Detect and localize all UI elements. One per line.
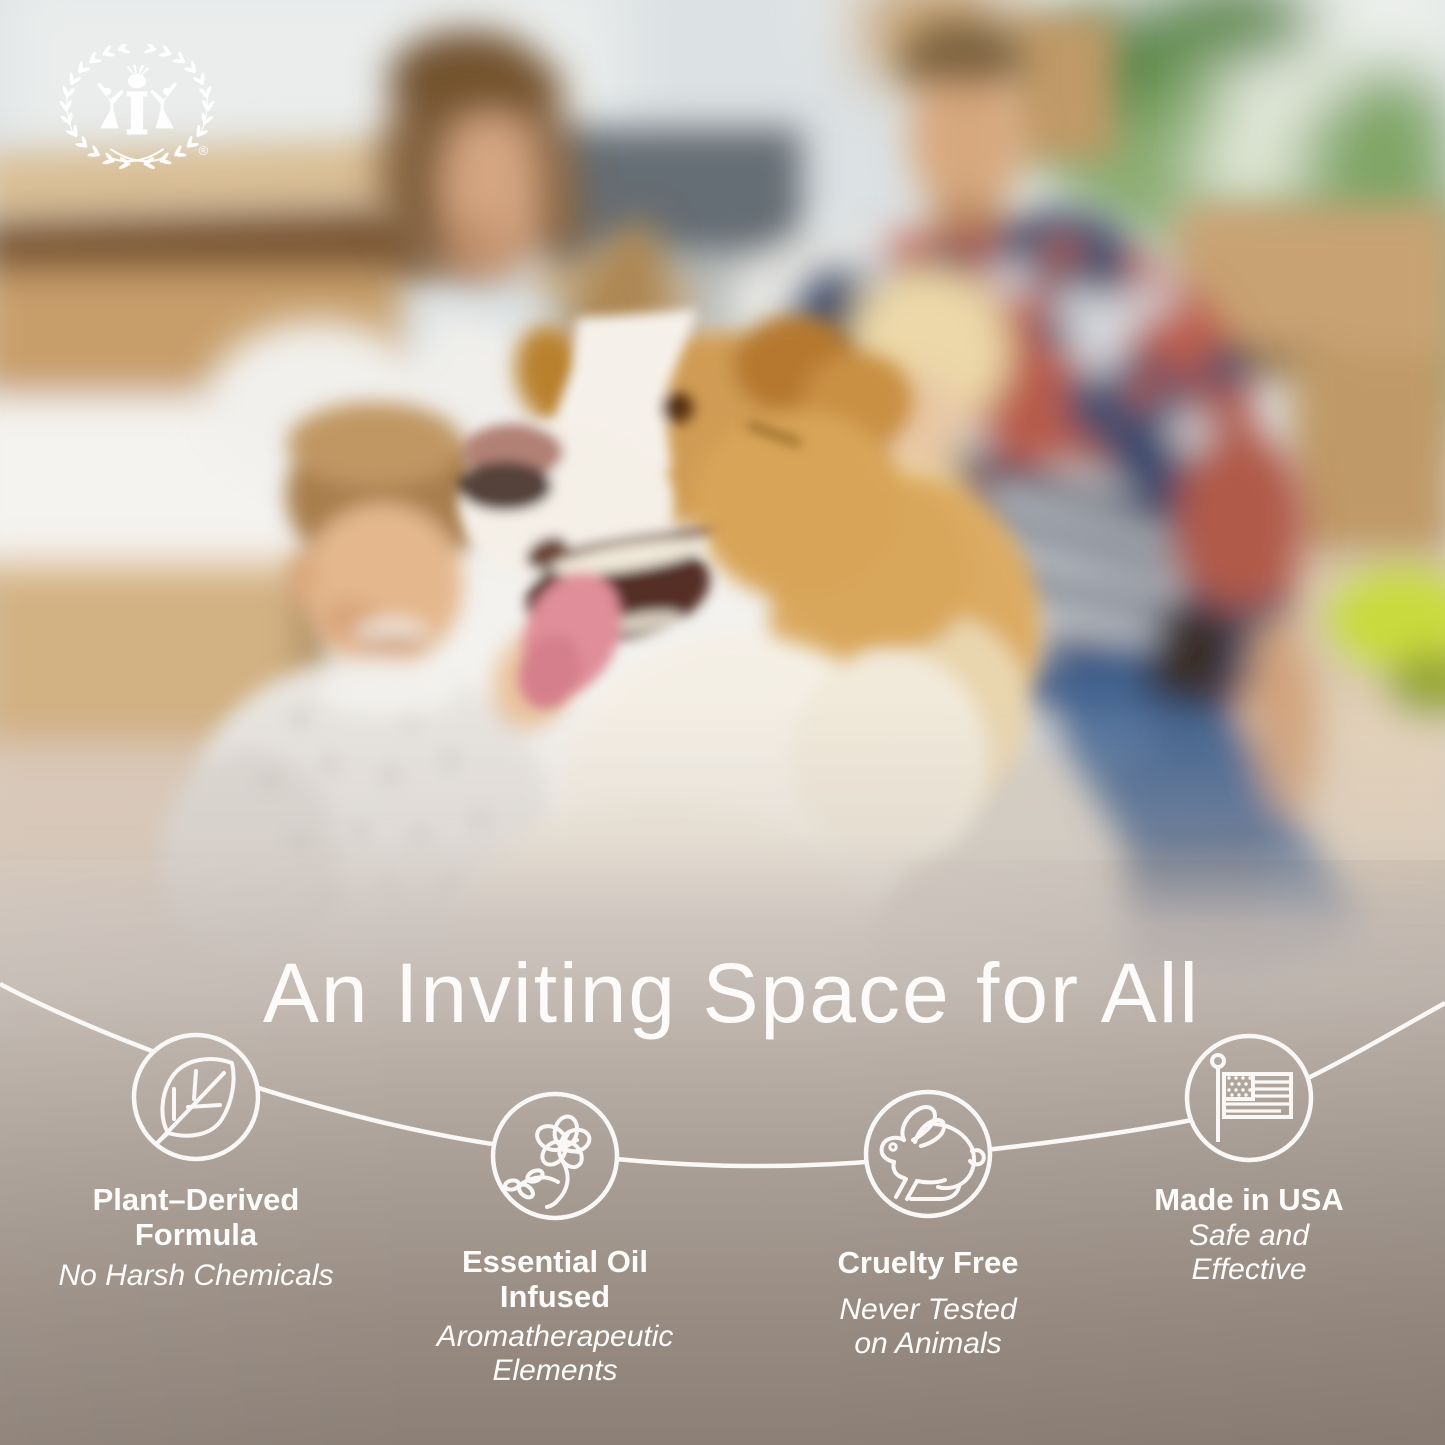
svg-text:®: ® bbox=[199, 143, 209, 158]
